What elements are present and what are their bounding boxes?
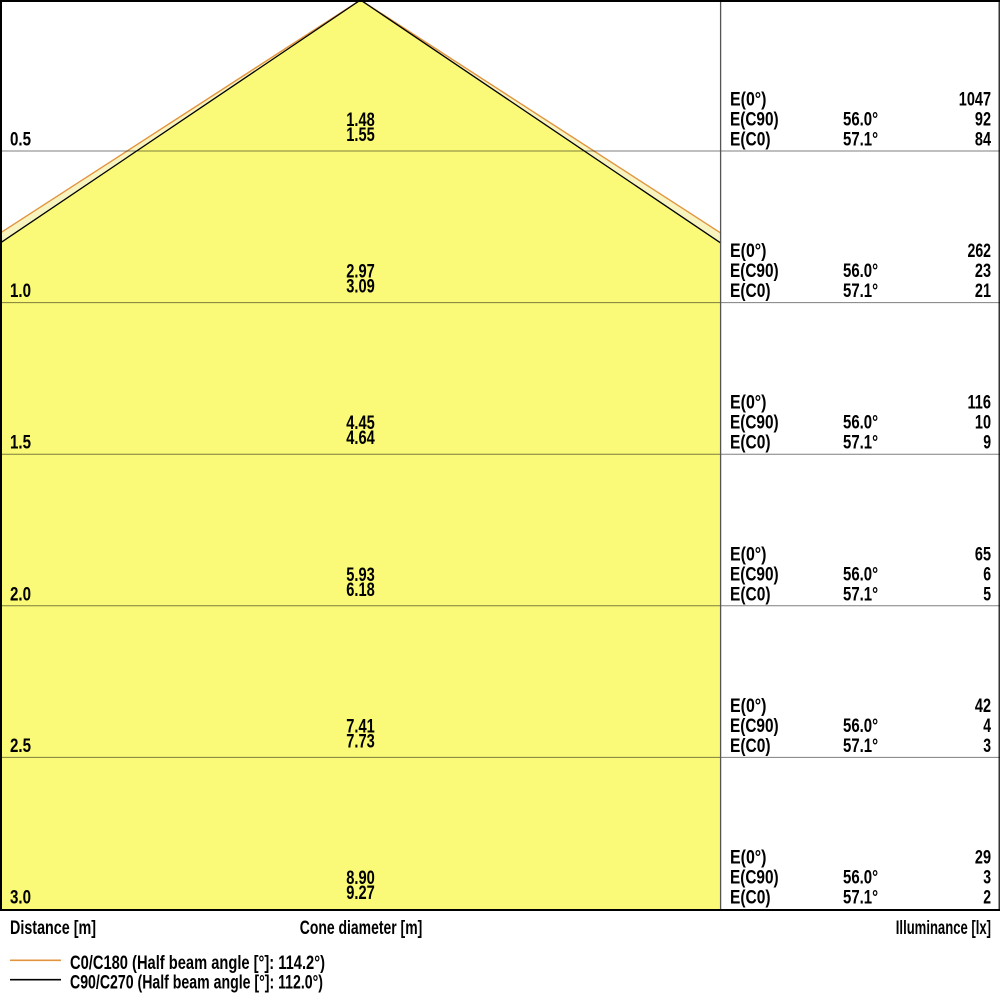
svg-text:56.0°: 56.0°	[843, 716, 878, 737]
svg-text:E(C0): E(C0)	[730, 281, 771, 302]
svg-text:2.0: 2.0	[10, 584, 31, 605]
svg-text:3.0: 3.0	[10, 888, 31, 909]
svg-text:1.55: 1.55	[346, 125, 375, 146]
svg-text:E(0°): E(0°)	[730, 696, 767, 717]
svg-text:4.64: 4.64	[346, 428, 375, 449]
svg-text:84: 84	[975, 130, 991, 151]
svg-text:6: 6	[983, 564, 991, 585]
svg-text:57.1°: 57.1°	[843, 888, 878, 909]
svg-text:E(0°): E(0°)	[730, 848, 767, 869]
svg-text:56.0°: 56.0°	[843, 868, 878, 889]
svg-text:42: 42	[975, 696, 991, 717]
svg-text:0.5: 0.5	[10, 130, 31, 151]
svg-text:9: 9	[983, 433, 991, 454]
svg-text:29: 29	[975, 848, 991, 869]
svg-text:E(C90): E(C90)	[730, 110, 779, 131]
svg-text:56.0°: 56.0°	[843, 564, 878, 585]
svg-text:C90/C270 (Half beam angle [°]:: C90/C270 (Half beam angle [°]: 112.0°)	[70, 973, 323, 994]
svg-text:5: 5	[983, 584, 991, 605]
svg-text:Cone diameter [m]: Cone diameter [m]	[300, 918, 423, 939]
svg-text:E(C0): E(C0)	[730, 888, 771, 909]
svg-text:1047: 1047	[959, 90, 991, 111]
svg-text:57.1°: 57.1°	[843, 584, 878, 605]
svg-text:56.0°: 56.0°	[843, 110, 878, 131]
svg-text:Illuminance [lx]: Illuminance [lx]	[896, 918, 991, 939]
svg-text:116: 116	[968, 393, 992, 414]
svg-text:E(C90): E(C90)	[730, 564, 779, 585]
svg-text:56.0°: 56.0°	[843, 413, 878, 434]
svg-text:C0/C180 (Half beam angle [°]:: C0/C180 (Half beam angle [°]: 114.2°)	[70, 953, 325, 974]
svg-text:92: 92	[975, 110, 991, 131]
svg-text:E(C90): E(C90)	[730, 261, 779, 282]
svg-text:2: 2	[983, 888, 991, 909]
svg-text:6.18: 6.18	[346, 580, 375, 601]
svg-text:23: 23	[975, 261, 991, 282]
svg-text:E(0°): E(0°)	[730, 544, 767, 565]
svg-text:1.0: 1.0	[10, 281, 31, 302]
svg-text:E(C90): E(C90)	[730, 413, 779, 434]
svg-text:21: 21	[975, 281, 991, 302]
svg-text:57.1°: 57.1°	[843, 281, 878, 302]
svg-text:9.27: 9.27	[346, 883, 375, 904]
svg-text:E(C0): E(C0)	[730, 130, 771, 151]
svg-text:E(0°): E(0°)	[730, 241, 767, 262]
svg-text:4: 4	[983, 716, 991, 737]
svg-text:E(C90): E(C90)	[730, 868, 779, 889]
svg-text:Distance [m]: Distance [m]	[10, 918, 96, 939]
svg-text:3.09: 3.09	[346, 277, 375, 298]
svg-text:E(C0): E(C0)	[730, 584, 771, 605]
svg-text:E(C0): E(C0)	[730, 433, 771, 454]
svg-text:57.1°: 57.1°	[843, 130, 878, 151]
svg-text:E(0°): E(0°)	[730, 90, 767, 111]
svg-text:3: 3	[983, 868, 991, 889]
svg-text:56.0°: 56.0°	[843, 261, 878, 282]
svg-text:3: 3	[983, 736, 991, 757]
svg-text:1.5: 1.5	[10, 433, 31, 454]
svg-text:2.5: 2.5	[10, 736, 31, 757]
svg-text:262: 262	[968, 241, 992, 262]
svg-text:10: 10	[975, 413, 991, 434]
svg-text:7.73: 7.73	[346, 731, 375, 752]
svg-text:57.1°: 57.1°	[843, 736, 878, 757]
svg-text:65: 65	[975, 544, 991, 565]
svg-text:E(0°): E(0°)	[730, 393, 767, 414]
svg-text:E(C90): E(C90)	[730, 716, 779, 737]
svg-text:57.1°: 57.1°	[843, 433, 878, 454]
svg-text:E(C0): E(C0)	[730, 736, 771, 757]
